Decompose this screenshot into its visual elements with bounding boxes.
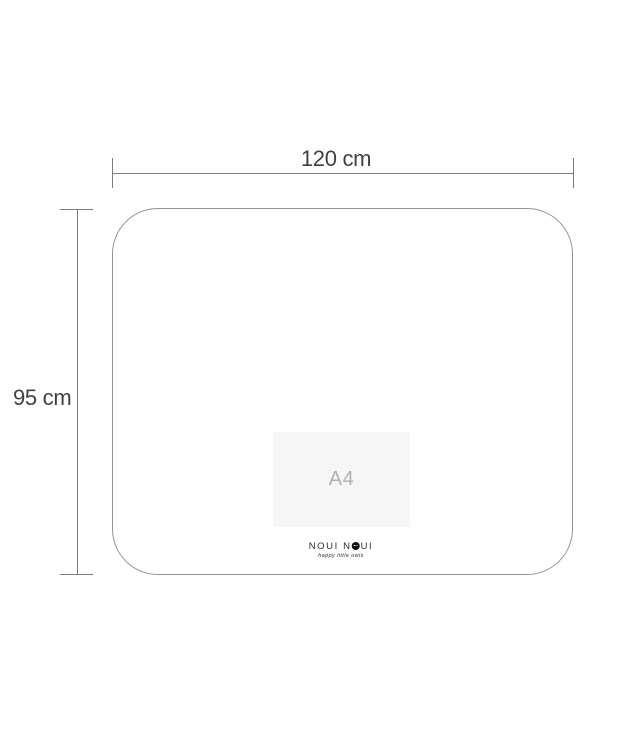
height-dimension-tick-bottom [60, 574, 93, 575]
height-dimension-label: 95 cm [13, 387, 71, 409]
brand-name: NOUI NUI [309, 542, 374, 552]
owl-icon [352, 542, 360, 550]
brand-name-before-owl: NOUI N [309, 542, 352, 552]
width-dimension-tick-left [112, 158, 113, 188]
product-diagram: 120 cm 95 cm A4 NOUI NUI happy little ow… [0, 0, 619, 738]
brand-tagline: happy little owls [309, 554, 374, 560]
height-dimension-tick-top [60, 209, 93, 210]
brand-name-after-owl: UI [361, 542, 374, 552]
height-dimension-line [77, 209, 78, 575]
a4-reference-box: A4 [273, 432, 410, 527]
a4-label: A4 [329, 468, 354, 491]
width-dimension-line [112, 173, 574, 174]
brand-logo: NOUI NUI happy little owls [309, 542, 374, 559]
width-dimension-label: 120 cm [301, 148, 371, 170]
width-dimension-tick-right [573, 158, 574, 188]
